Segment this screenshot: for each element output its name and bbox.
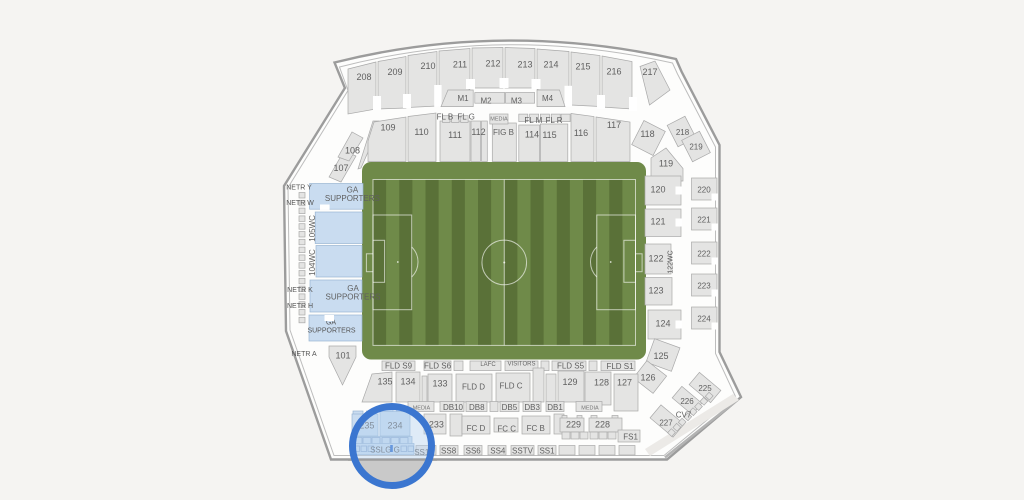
svg-text:208: 208	[356, 72, 371, 82]
svg-text:FLD S5: FLD S5	[557, 362, 585, 371]
svg-text:FLD S9: FLD S9	[385, 362, 413, 371]
svg-text:M4: M4	[542, 94, 554, 103]
svg-text:222: 222	[697, 250, 711, 259]
svg-text:DB1: DB1	[547, 403, 563, 412]
svg-text:SUPPORTERS: SUPPORTERS	[326, 293, 381, 302]
svg-text:122: 122	[648, 254, 663, 264]
svg-text:DB10: DB10	[443, 403, 464, 412]
svg-text:105WC: 105WC	[308, 215, 317, 242]
svg-text:FS1: FS1	[623, 433, 638, 442]
svg-text:115: 115	[542, 130, 556, 140]
svg-text:225: 225	[698, 384, 712, 393]
svg-text:128: 128	[594, 378, 609, 388]
svg-text:227: 227	[659, 419, 673, 428]
svg-text:FL B: FL B	[437, 112, 454, 121]
svg-text:MEDIA: MEDIA	[490, 117, 508, 123]
svg-text:114: 114	[525, 130, 539, 140]
svg-text:221: 221	[697, 216, 711, 225]
svg-text:DB3: DB3	[524, 403, 540, 412]
svg-text:133: 133	[432, 379, 447, 389]
svg-text:MEDIA: MEDIA	[581, 406, 599, 412]
svg-text:220: 220	[697, 186, 711, 195]
svg-text:SS1: SS1	[539, 447, 555, 456]
svg-text:122WC: 122WC	[668, 250, 675, 273]
svg-text:120: 120	[650, 185, 665, 195]
svg-text:FL G: FL G	[457, 112, 474, 121]
svg-text:107: 107	[333, 163, 348, 173]
svg-text:FLD C: FLD C	[499, 382, 522, 391]
svg-text:112: 112	[471, 127, 485, 137]
svg-text:123: 123	[648, 286, 663, 296]
svg-text:129: 129	[562, 377, 577, 387]
svg-text:SSTV: SSTV	[512, 447, 534, 456]
svg-text:FC D: FC D	[467, 424, 486, 433]
svg-text:M1: M1	[457, 94, 469, 103]
svg-text:209: 209	[387, 67, 402, 77]
svg-text:FLD S1: FLD S1	[606, 362, 634, 371]
svg-text:101: 101	[335, 351, 350, 361]
svg-text:108: 108	[345, 146, 360, 156]
svg-text:FC B: FC B	[527, 424, 545, 433]
svg-text:214: 214	[543, 60, 558, 70]
svg-text:228: 228	[595, 420, 610, 430]
svg-text:125: 125	[653, 351, 668, 361]
svg-text:224: 224	[697, 315, 711, 324]
svg-text:226: 226	[680, 397, 694, 406]
svg-text:121: 121	[650, 217, 665, 227]
svg-text:NETR Y: NETR Y	[286, 184, 312, 191]
svg-text:VISITORS: VISITORS	[508, 362, 536, 368]
svg-text:210: 210	[420, 61, 435, 71]
svg-text:233: 233	[429, 420, 444, 430]
svg-text:104WC: 104WC	[308, 249, 317, 276]
svg-text:127: 127	[617, 378, 632, 388]
svg-text:FL R: FL R	[545, 116, 562, 125]
svg-text:212: 212	[485, 59, 500, 69]
svg-text:SUPPORTERS: SUPPORTERS	[307, 328, 355, 335]
svg-text:126: 126	[640, 373, 655, 383]
svg-text:217: 217	[642, 67, 657, 77]
svg-text:213: 213	[517, 60, 532, 70]
svg-text:110: 110	[414, 127, 428, 137]
svg-text:223: 223	[697, 282, 711, 291]
svg-text:NETR W: NETR W	[286, 200, 314, 207]
svg-text:FC C: FC C	[497, 425, 516, 434]
svg-text:NETR K: NETR K	[287, 287, 313, 294]
svg-text:FL M: FL M	[524, 116, 542, 125]
svg-text:216: 216	[606, 67, 621, 77]
svg-text:FLD D: FLD D	[462, 383, 485, 392]
svg-text:215: 215	[575, 62, 590, 72]
svg-text:119: 119	[659, 159, 673, 169]
svg-text:116: 116	[574, 128, 588, 138]
svg-text:CV7: CV7	[676, 411, 692, 420]
svg-text:SS8: SS8	[441, 447, 457, 456]
svg-text:117: 117	[607, 120, 621, 130]
svg-text:NETR A: NETR A	[291, 351, 317, 358]
svg-text:118: 118	[640, 129, 654, 139]
svg-text:211: 211	[453, 60, 467, 70]
svg-text:109: 109	[380, 123, 395, 133]
svg-text:LAFC: LAFC	[480, 362, 496, 368]
svg-text:M2: M2	[480, 96, 492, 105]
svg-text:FIG B: FIG B	[493, 128, 514, 137]
svg-text:134: 134	[400, 377, 415, 387]
svg-text:SUPPORTERS: SUPPORTERS	[325, 194, 380, 203]
svg-text:219: 219	[689, 143, 703, 152]
svg-text:111: 111	[448, 130, 462, 140]
svg-text:229: 229	[566, 420, 581, 430]
svg-text:SS6: SS6	[466, 447, 482, 456]
svg-text:218: 218	[676, 128, 690, 137]
svg-text:SS4: SS4	[490, 447, 506, 456]
svg-text:135: 135	[377, 377, 392, 387]
svg-text:DB8: DB8	[469, 403, 485, 412]
svg-text:M3: M3	[511, 97, 523, 106]
svg-text:124: 124	[655, 319, 670, 329]
svg-text:FLD S6: FLD S6	[424, 362, 452, 371]
svg-text:DB5: DB5	[502, 403, 518, 412]
svg-text:NETR H: NETR H	[287, 303, 313, 310]
